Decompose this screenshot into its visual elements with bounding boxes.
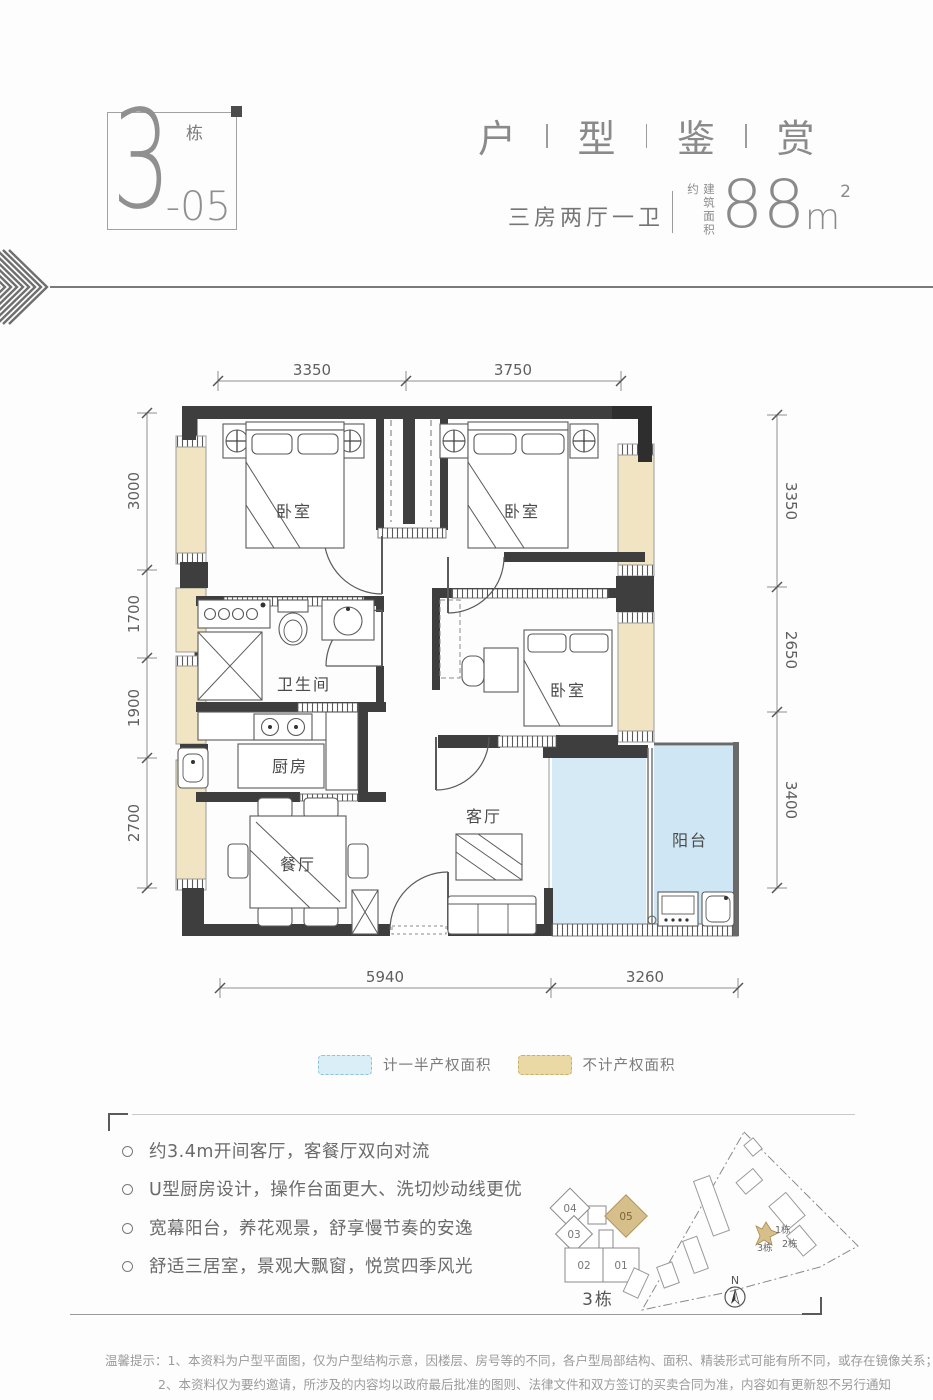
floorplan-poster: 3 栋 -05 户 型 鉴 赏 三房两厅一卫 建筑面积约 88 m 2 (0, 0, 933, 1400)
circle-bullet-icon (122, 1184, 133, 1195)
shaft-and-thresholds (391, 420, 460, 934)
building-number: 3 (112, 93, 171, 229)
floor-plan: 卧室 卧室 卫生间 卧室 厨房 餐厅 客厅 阳台 (95, 345, 875, 1025)
spec-divider (672, 191, 673, 233)
dim-left-3: 1900 (125, 689, 143, 727)
area-value: 88 (721, 172, 805, 238)
kitchen-fixtures (178, 712, 358, 790)
living-furniture (352, 834, 536, 934)
page-title: 户 型 鉴 赏 (478, 108, 815, 163)
layout-type: 三房两厅一卫 (508, 200, 664, 232)
dim-right-3: 3400 (782, 781, 800, 819)
title-char: 鉴 (677, 108, 715, 163)
circle-bullet-icon (122, 1146, 133, 1157)
unit-number-box: 3 栋 -05 (107, 112, 237, 230)
bedroom2-label: 卧室 (504, 502, 540, 521)
bed-bedroom2 (468, 422, 568, 548)
chevron-arrow-decoration (0, 248, 933, 328)
bed-bedroom3 (462, 630, 612, 726)
keyplan-caption: 3栋 (582, 1290, 614, 1310)
title-char: 户 (478, 108, 516, 163)
area-unit: m (805, 197, 840, 238)
bottom-rule (70, 1314, 802, 1315)
bedroom3-label: 卧室 (550, 681, 586, 700)
spec-row: 三房两厅一卫 建筑面积约 88 m 2 (508, 170, 851, 240)
corner-square-decoration (231, 106, 242, 117)
bathroom-label: 卫生间 (277, 675, 331, 694)
balcony-label: 阳台 (672, 831, 708, 850)
legend-half-area: 计一半产权面积 (318, 1054, 492, 1075)
site-plan: 1栋 2栋 3栋 N (623, 1132, 858, 1310)
dim-left-2: 1700 (125, 595, 143, 633)
compass-icon: N (725, 1274, 745, 1307)
keyplan-unit-02: 02 (577, 1260, 590, 1272)
feature-item: U型厨房设计，操作台面更大、洗切炒动线更优 (122, 1181, 522, 1200)
balcony-fixtures (648, 892, 734, 926)
dim-top-2: 3750 (494, 361, 532, 379)
keyplan-unit-01: 01 (614, 1260, 627, 1272)
title-separator (546, 124, 548, 148)
living-label: 客厅 (466, 807, 502, 826)
dim-bottom-1: 5940 (366, 968, 404, 986)
half-area-swatch (318, 1055, 372, 1075)
title-char: 型 (578, 108, 616, 163)
disclaimer-line2: 2、本资料仅为要约邀请，所涉及的内容均以政府最后批准的图则、法律文件和双方签订的… (158, 1374, 891, 1393)
siteplan-label-1: 1栋 (775, 1224, 791, 1236)
bedroom1-label: 卧室 (276, 502, 312, 521)
dim-left-1: 3000 (125, 472, 143, 510)
dim-right-1: 3350 (782, 482, 800, 520)
siteplan-label-3: 3栋 (757, 1242, 773, 1254)
keyplan-unit-03: 03 (567, 1229, 580, 1241)
legend-excluded-area: 不计产权面积 (518, 1054, 676, 1075)
keyplan-unit-05: 05 (619, 1211, 632, 1223)
half-area-label: 计一半产权面积 (383, 1054, 492, 1075)
key-and-site-plan: 04 03 05 02 01 3栋 1栋 (530, 1125, 890, 1325)
excluded-area-swatch (518, 1055, 572, 1075)
building-suffix: 栋 (186, 119, 203, 144)
feature-item: 宽幕阳台，养花观景，舒享慢节奏的安逸 (122, 1220, 522, 1239)
corner-bracket-bottom-right (802, 1297, 822, 1315)
bed-bedroom1 (246, 422, 344, 548)
area-prefix: 建筑面积约 (685, 183, 717, 241)
dim-bottom-2: 3260 (626, 968, 664, 986)
feature-item: 约3.4m开间客厅，客餐厅双向对流 (122, 1143, 522, 1162)
dining-label: 餐厅 (280, 855, 316, 874)
keyplan-unit-04: 04 (563, 1203, 577, 1215)
excluded-area-label: 不计产权面积 (583, 1054, 676, 1075)
area-superscript: 2 (840, 182, 851, 202)
unit-number: -05 (166, 185, 231, 229)
title-separator (745, 124, 747, 148)
kitchen-label: 厨房 (272, 757, 308, 776)
feature-item: 舒适三居室，景观大飘窗，悦赏四季风光 (122, 1258, 522, 1277)
circle-bullet-icon (122, 1261, 133, 1272)
area-legend: 计一半产权面积 不计产权面积 (318, 1054, 676, 1075)
feature-list: 约3.4m开间客厅，客餐厅双向对流 U型厨房设计，操作台面更大、洗切炒动线更优 … (122, 1143, 522, 1296)
dim-top-1: 3350 (293, 361, 331, 379)
title-char: 赏 (777, 108, 815, 163)
dim-right-2: 2650 (782, 631, 800, 669)
corner-bracket-top-left (108, 1113, 128, 1131)
title-separator (646, 124, 648, 148)
siteplan-label-2: 2栋 (782, 1238, 798, 1250)
dim-left-4: 2700 (125, 804, 143, 842)
features-rule (132, 1114, 855, 1115)
circle-bullet-icon (122, 1223, 133, 1234)
disclaimer-line1: 温馨提示：1、本资料为户型平面图，仅为户型结构示意，因楼层、房号等的不同，各户型… (105, 1350, 933, 1369)
compass-north-label: N (731, 1274, 739, 1287)
